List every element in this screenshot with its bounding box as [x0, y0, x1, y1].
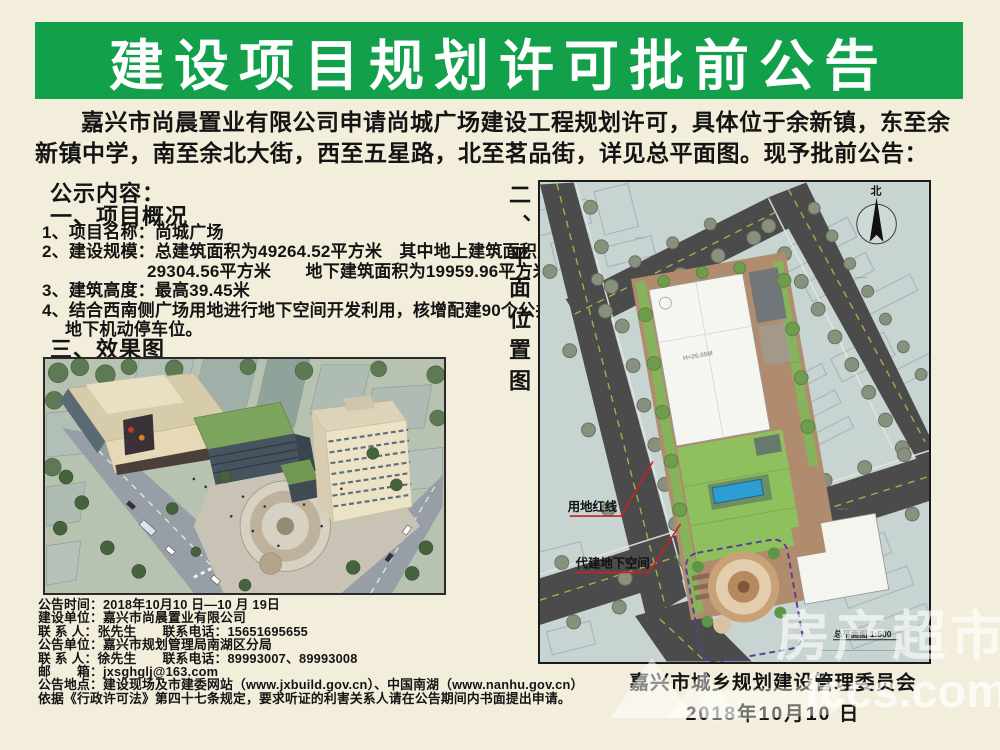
footer-info: 公告时间：2018年10月10 日—10 月 19日 建设单位：嘉兴市尚晨置业有…: [38, 598, 530, 705]
footer-line: 邮 箱：jxsghglj@163.com: [38, 665, 530, 678]
red-line-label: 用地红线: [568, 499, 618, 514]
footer-line: 公告地点：建设现场及市建委网站（www.jxbuild.gov.cn）、中国南湖…: [38, 678, 530, 691]
tower-building: [312, 395, 412, 522]
site-plan-svg: H=26.05M: [540, 182, 929, 662]
section2-vertical-title: 二、平面位置图: [502, 183, 534, 413]
north-label: 北: [871, 183, 882, 197]
footer-line: 公告单位：嘉兴市规划管理局南湖区分局: [38, 638, 530, 651]
list-item: 1、项目名称：尚城广场: [42, 223, 512, 242]
footer-line: 依据《行政许可法》第四十七条规定，要求听证的利害关系人请在公告期间内书面提出申请…: [38, 692, 530, 705]
footer-line: 公告时间：2018年10月10 日—10 月 19日: [38, 598, 530, 611]
underground-label: 代建地下空间: [575, 556, 650, 571]
project-overview-list: 1、项目名称：尚城广场 2、建设规模：总建筑面积为49264.52平方米 其中地…: [42, 223, 512, 339]
list-item: 2、建设规模：总建筑面积为49264.52平方米 其中地上建筑面积为: [42, 242, 512, 261]
list-item-wrap: 29304.56平方米 地下建筑面积为19959.96平方米: [42, 262, 512, 281]
issue-date: 2018年10月10 日: [598, 697, 948, 726]
issuing-authority: 嘉兴市城乡规划建设管理委员会: [598, 666, 948, 695]
intro-paragraph: 嘉兴市尚晨置业有限公司申请尚城广场建设工程规划许可，具体位于余新镇，东至余新镇中…: [35, 107, 967, 169]
signature-block: 嘉兴市城乡规划建设管理委员会 2018年10月10 日: [598, 666, 948, 726]
scale-label: 总平面图 1:500: [834, 629, 892, 639]
footer-line: 联 系 人：张先生 联系电话：15651695655: [38, 625, 530, 638]
rendering-image: [43, 357, 446, 595]
notice-poster: 建设项目规划许可批前公告 嘉兴市尚晨置业有限公司申请尚城广场建设工程规划许可，具…: [0, 0, 1000, 750]
list-item: 3、建筑高度：最高39.45米: [42, 281, 512, 300]
site-plan-image: H=26.05M: [538, 180, 931, 664]
banner: 建设项目规划许可批前公告: [35, 22, 963, 99]
list-item: 4、结合西南侧广场用地进行地下空间开发利用，核增配建90个公共: [42, 301, 512, 320]
footer-line: 建设单位：嘉兴市尚晨置业有限公司: [38, 611, 530, 624]
rendering-svg: [45, 359, 444, 593]
page-title: 建设项目规划许可批前公告: [109, 21, 889, 101]
footer-line: 联 系 人：徐先生 联系电话：89993007、89993008: [38, 652, 530, 665]
